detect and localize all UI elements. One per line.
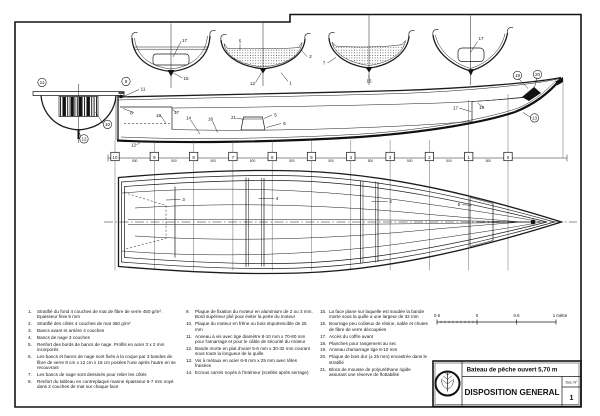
legend-item-text: Les bancs de nage sont dessinés pour rel… [37, 372, 180, 377]
plan-view-callouts: 3445 [182, 196, 461, 207]
legend-item-number: 1. [28, 309, 37, 320]
legend-item: 10. Plaque du moteur en frêne ou bois im… [186, 321, 314, 332]
legend-item-number: 17. [320, 334, 329, 339]
legend-item-text: Planches pour rangement au sec [329, 341, 428, 346]
scale-label: 0.5 [514, 313, 521, 318]
legend-item-number: 12. [186, 346, 195, 357]
legend-item-number: 7. [28, 372, 37, 377]
legend-item-text: Plaque du moteur en frêne ou bois imputr… [195, 321, 314, 332]
callout-label: 2 [309, 54, 312, 59]
legend-item: 12. Bande morte en plat d'acier 5-6 mm x… [186, 346, 314, 357]
legend-item-number: 13. [186, 358, 195, 369]
legend-item-text: La face plane sur laquelle est soudée la… [329, 309, 428, 320]
callout-label: 15 [183, 76, 189, 81]
cross-section-b [221, 23, 311, 86]
legend-item: 5. Renfort des bords de bancs de nage. P… [28, 342, 180, 353]
boat-title: Bateau de pêche ouvert 5,70 m [467, 367, 558, 374]
legend-item: 9. Plaque de fixation du moteur en alumi… [186, 309, 314, 320]
legend-item-number: 8. [28, 379, 37, 390]
cross-section-d [433, 16, 513, 86]
drawing-sheet: 17155212171517 111012 [0, 0, 600, 416]
legend-item: 21. Blocs de mousse de polyuréthane rigi… [320, 367, 428, 378]
callout-label: 20 [535, 72, 541, 77]
station-spacing-label: 500 [250, 159, 256, 163]
legend-item-number: 4. [28, 335, 37, 340]
legend-item: 1. Stratifié du fond 4 couches de mat de… [28, 309, 180, 320]
callout-label: 18 [479, 105, 485, 110]
legend-item-number: 18. [320, 341, 329, 346]
sheet-number-label: Des. N° [566, 381, 578, 385]
station-spacing-label: 500 [368, 159, 374, 163]
callout-label: 17 [478, 36, 484, 41]
legend-item-text: Anneau à vis avec tige diamètre 8-10 mm … [195, 334, 314, 345]
callout-label: 11 [141, 87, 146, 92]
station-spacing-label: 500 [407, 159, 413, 163]
callout-label: 5 [458, 202, 461, 207]
fao-logo [436, 372, 460, 396]
legend-item: 11. Anneau à vis avec tige diamètre 8-10… [186, 334, 314, 345]
legend-item: 16. Bourrage peu coûteux de résine, sabl… [320, 321, 428, 332]
hatch-opening [458, 48, 484, 62]
station-spacing-label: 500 [328, 159, 334, 163]
legend-item: 3. Bancs avant et arrière 4 couches [28, 328, 180, 333]
callout-label: 18 [156, 113, 162, 118]
scale-bar: 0.5 0 0.5 1 mètre [434, 313, 568, 325]
legend-item-text: Ecrous carrés noyés à l'intérieur (scell… [195, 370, 314, 375]
legend-item-text: Accès du coffre avant [329, 334, 428, 339]
legend-item: 14. Ecrous carrés noyés à l'intérieur (s… [186, 370, 314, 375]
callout-label: 17 [174, 110, 180, 115]
legend-item-text: Blocs de mousse de polyuréthane rigide a… [329, 367, 428, 378]
station-spacing-label: 500 [446, 159, 452, 163]
station-number: 10 [113, 155, 118, 160]
callout-label: 7 [323, 61, 326, 66]
legend-item: 19. Anneau d'amarrage tige 8-10 mm [320, 347, 428, 352]
legend-column-1: 1. Stratifié du fond 4 couches de mat de… [28, 309, 180, 391]
legend-item-number: 15. [320, 309, 329, 320]
legend-item-text: Anneau d'amarrage tige 8-10 mm [329, 347, 428, 352]
legend-column-2: 9. Plaque de fixation du moteur en alumi… [186, 309, 314, 377]
callout-label: 1 [289, 81, 292, 86]
callout-label: 11 [40, 80, 45, 85]
callout-label: 19 [515, 73, 521, 78]
station-spacing-label: 500 [210, 159, 216, 163]
legend-item: 7. Les bancs de nage sont dessinés pour … [28, 372, 180, 377]
callout-label: 8 [130, 111, 133, 116]
legend-item-text: Vis à métaux en acier 6-8 mm x 25 mm ave… [195, 358, 314, 369]
legend-item: 6. Les bancs et bancs de nage sont fixés… [28, 354, 180, 370]
legend-item-text: Bancs avant et arrière 4 couches [37, 328, 180, 333]
callout-label: 5 [239, 39, 242, 44]
legend-item-number: 2. [28, 321, 37, 326]
legend-item-number: 16. [320, 321, 329, 332]
legend-item: 13. Vis à métaux en acier 6-8 mm x 25 mm… [186, 358, 314, 369]
scale-label: 0.5 [434, 313, 441, 318]
legend-item-text: Plaque de bois dur (± 25 mm) encastrée d… [329, 354, 428, 365]
side-view-callouts: 9118181714162156121718192013 [122, 70, 542, 147]
station-spacing-label: 500 [289, 159, 295, 163]
callout-label: 6 [283, 121, 286, 126]
drawing-title: DISPOSITION GENERAL [464, 388, 559, 397]
legend-item: 18. Planches pour rangement au sec [320, 341, 428, 346]
legend-item: 4. Bancs de nage 3 couches [28, 335, 180, 340]
callout-label: 10 [105, 122, 111, 127]
station-spacing-label: 500 [486, 159, 492, 163]
station-dimension-line: 1050095008500750065005500450035002500150… [108, 140, 567, 271]
legend-item-text: Renfort du tableau en contreplaqué marin… [37, 379, 180, 390]
legend-item: 20. Plaque de bois dur (± 25 mm) encastr… [320, 354, 428, 365]
legend-item-text: Bancs de nage 3 couches [37, 335, 180, 340]
hull-cross-sections: 17155212171517 [132, 16, 513, 89]
side-elevation: 9118181714162156121718192013 [116, 70, 563, 158]
callout-label: 5 [274, 113, 277, 118]
callout-label: 21 [231, 115, 237, 120]
callout-label: 9 [125, 79, 128, 84]
legend-item-number: 10. [186, 321, 195, 332]
station-markers: 1050095008500750065005500450035002500150… [111, 140, 512, 271]
legend-item-number: 5. [28, 342, 37, 353]
stem-head-plan [531, 220, 536, 225]
callout-label: 3 [182, 197, 185, 202]
legend-item-text: Plaque de fixation du moteur en aluminiu… [195, 309, 314, 320]
legend-item-number: 9. [186, 309, 195, 320]
callout-label: 16 [208, 117, 214, 122]
legend-item: 17. Accès du coffre avant [320, 334, 428, 339]
stern-ring-bolt [119, 95, 123, 99]
legend-item-number: 3. [28, 328, 37, 333]
callout-label: 4 [389, 199, 392, 204]
callout-label: 4 [276, 196, 279, 201]
callout-label: 12 [81, 137, 87, 142]
callout-label: 12 [131, 143, 137, 148]
legend-item-text: Stratifié des côtés 4 couches de mat 450… [37, 321, 180, 326]
callout-label: 17 [182, 38, 188, 43]
legend-item-number: 20. [320, 354, 329, 365]
legend-item-text: Bourrage peu coûteux de résine, sable et… [329, 321, 428, 332]
scale-label: 0 [476, 313, 479, 318]
station-spacing-label: 500 [171, 159, 177, 163]
callout-label: 14 [186, 116, 192, 121]
title-block: Bateau de pêche ouvert 5,70 m DISPOSITIO… [433, 361, 581, 407]
legend-item-number: 21. [320, 367, 329, 378]
plan-view: 3445 [104, 171, 577, 274]
legend-column-3: 15. La face plane sur laquelle est soudé… [320, 309, 428, 379]
legend-item-number: 14. [186, 370, 195, 375]
legend-item: 2. Stratifié des côtés 4 couches de mat … [28, 321, 180, 326]
callout-label: 13 [532, 116, 538, 121]
legend-item: 8. Renfort du tableau en contreplaqué ma… [28, 379, 180, 390]
legend-item-text: Bande morte en plat d'acier 5-6 mm x 30-… [195, 346, 314, 357]
legend-item-number: 19. [320, 347, 329, 352]
scale-label: 1 mètre [553, 313, 568, 318]
callout-label: 12 [250, 81, 256, 86]
transom-detail: 111012 [33, 78, 124, 143]
legend-item-number: 6. [28, 354, 37, 370]
callout-label: 15 [366, 79, 372, 84]
station-spacing-label: 500 [132, 159, 138, 163]
legend-item-text: Les bancs et bancs de nage sont fixés à … [37, 354, 180, 370]
legend-item: 15. La face plane sur laquelle est soudé… [320, 309, 428, 320]
sheet-number: 1 [570, 395, 574, 402]
callout-label: 17 [453, 106, 459, 111]
legend-item-text: Renfort des bords de bancs de nage. Prof… [37, 342, 180, 353]
legend-item-text: Stratifié du fond 4 couches de mat de fi… [37, 309, 180, 320]
cross-section-c [329, 16, 415, 86]
legend-item-number: 11. [186, 334, 195, 345]
